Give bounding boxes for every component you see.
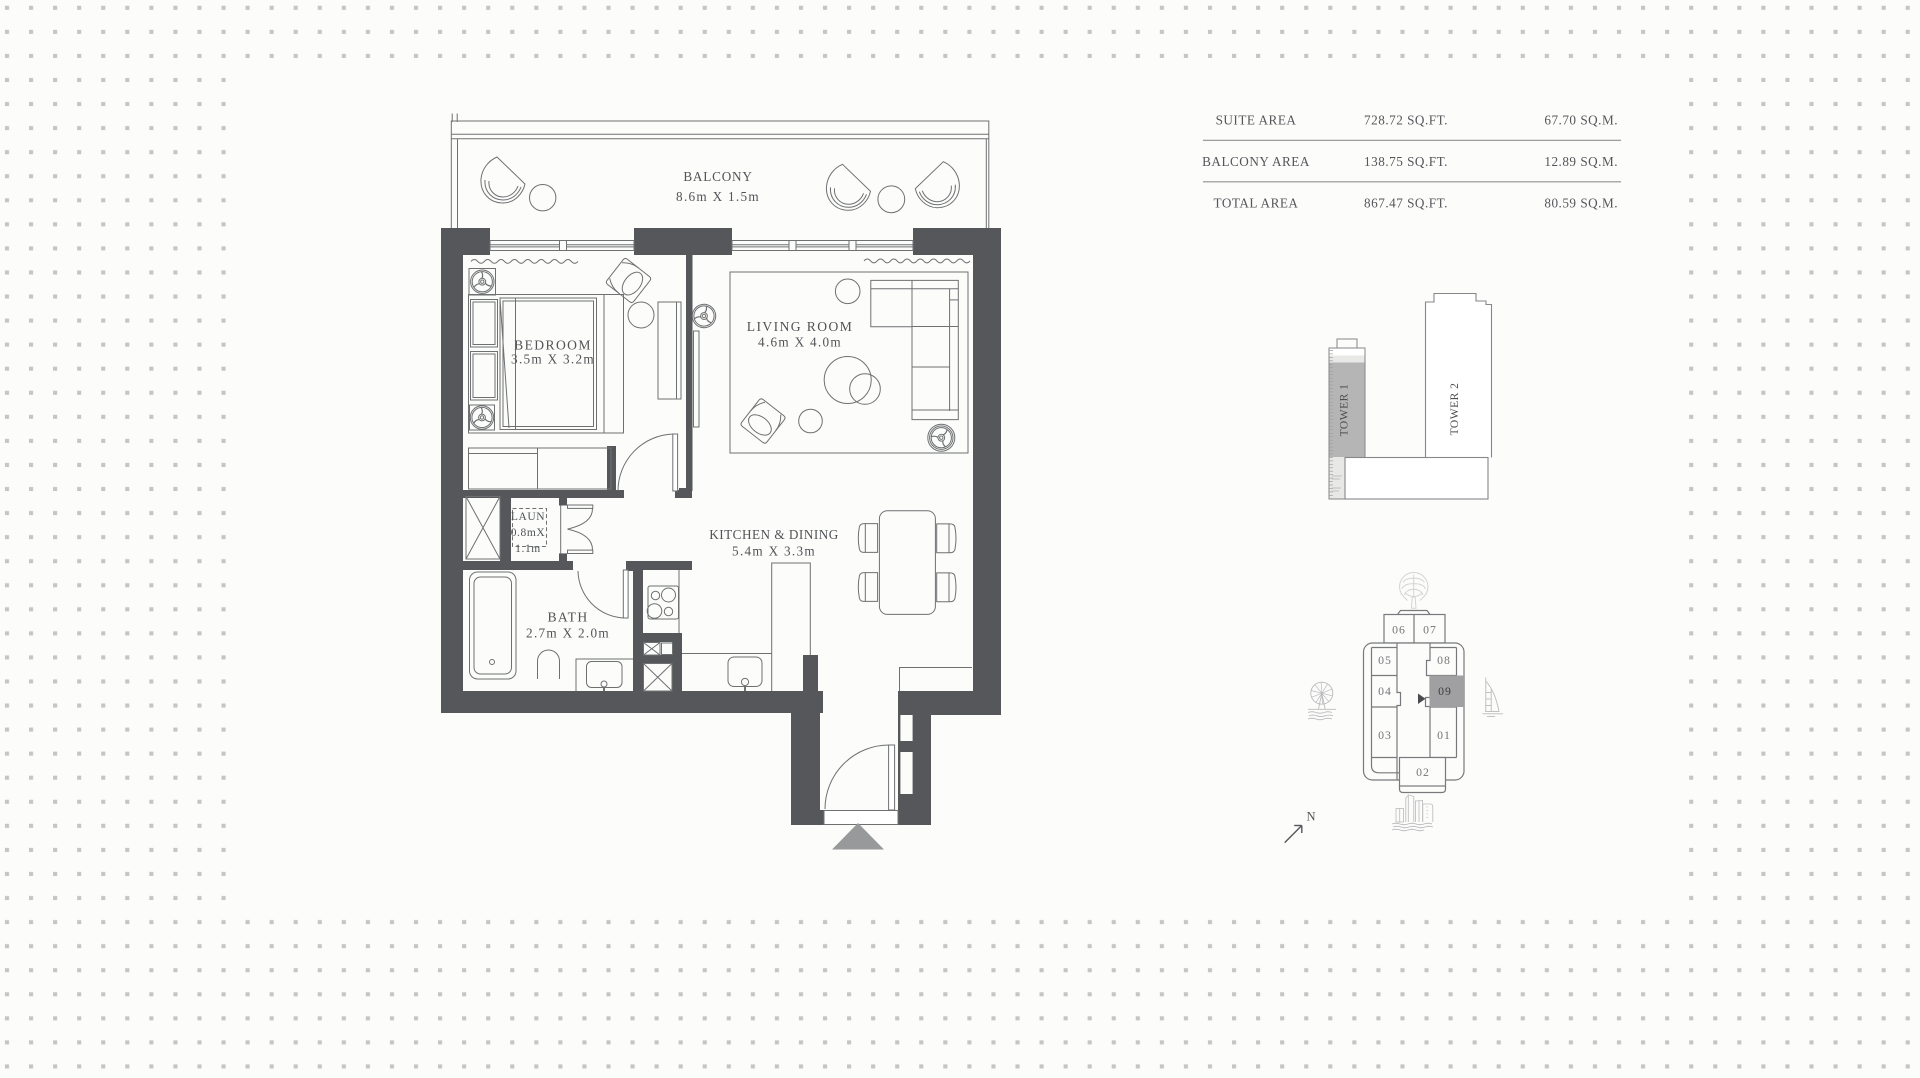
svg-text:5.4m X 3.3m: 5.4m X 3.3m: [732, 544, 816, 559]
svg-text:BALCONY: BALCONY: [683, 169, 752, 184]
svg-text:05: 05: [1378, 653, 1392, 667]
svg-text:8.6m X 1.5m: 8.6m X 1.5m: [676, 189, 760, 204]
svg-text:07: 07: [1423, 623, 1437, 637]
svg-text:3.5m X 3.2m: 3.5m X 3.2m: [511, 352, 595, 367]
svg-text:2.7m X 2.0m: 2.7m X 2.0m: [526, 626, 610, 641]
svg-text:LAUN: LAUN: [511, 511, 545, 523]
svg-text:01: 01: [1437, 728, 1451, 742]
svg-text:LIVING ROOM: LIVING ROOM: [747, 319, 853, 334]
svg-text:80.59 SQ.M.: 80.59 SQ.M.: [1544, 196, 1618, 211]
svg-text:867.47 SQ.FT.: 867.47 SQ.FT.: [1364, 196, 1448, 211]
svg-text:TOWER 1: TOWER 1: [1339, 384, 1351, 437]
svg-text:KITCHEN & DINING: KITCHEN & DINING: [709, 527, 839, 542]
svg-text:N: N: [1306, 810, 1315, 824]
svg-text:04: 04: [1378, 684, 1392, 698]
svg-text:4.6m X 4.0m: 4.6m X 4.0m: [758, 335, 842, 350]
svg-text:67.70 SQ.M.: 67.70 SQ.M.: [1544, 113, 1618, 128]
svg-text:BALCONY AREA: BALCONY AREA: [1202, 154, 1310, 169]
svg-text:TOTAL AREA: TOTAL AREA: [1214, 196, 1299, 211]
svg-text:02: 02: [1416, 765, 1430, 779]
svg-text:138.75 SQ.FT.: 138.75 SQ.FT.: [1364, 154, 1448, 169]
svg-text:TOWER 2: TOWER 2: [1449, 383, 1461, 436]
svg-text:03: 03: [1378, 728, 1392, 742]
svg-text:SUITE AREA: SUITE AREA: [1216, 113, 1297, 128]
svg-text:BATH: BATH: [547, 610, 588, 625]
svg-text:728.72 SQ.FT.: 728.72 SQ.FT.: [1364, 113, 1448, 128]
svg-text:1.1m: 1.1m: [515, 543, 541, 555]
svg-text:08: 08: [1437, 653, 1451, 667]
svg-text:12.89 SQ.M.: 12.89 SQ.M.: [1544, 154, 1618, 169]
svg-text:BEDROOM: BEDROOM: [514, 338, 592, 353]
svg-text:06: 06: [1392, 623, 1406, 637]
svg-text:0.8mX: 0.8mX: [511, 527, 546, 539]
svg-text:09: 09: [1438, 684, 1452, 698]
